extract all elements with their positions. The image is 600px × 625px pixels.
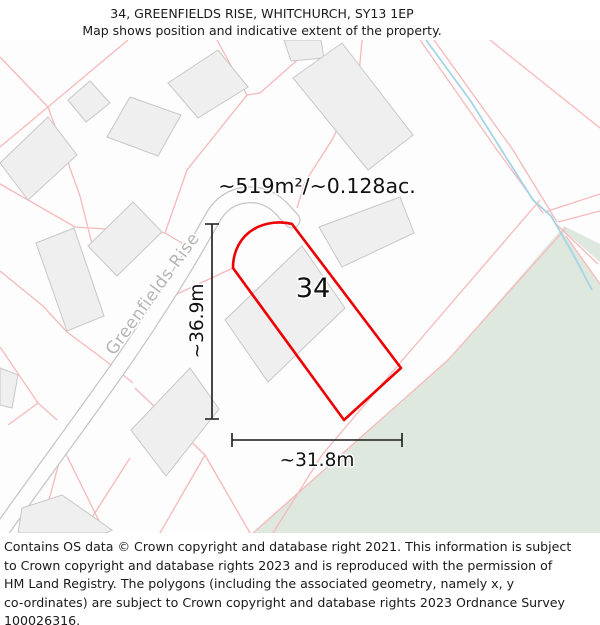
footer-line: co-ordinates) are subject to Crown copyr… — [4, 594, 598, 613]
copyright-footer: Contains OS data © Crown copyright and d… — [4, 538, 598, 625]
footer-line: Contains OS data © Crown copyright and d… — [4, 538, 598, 557]
header: 34, GREENFIELDS RISE, WHITCHURCH, SY13 1… — [0, 5, 524, 39]
footer-line: HM Land Registry. The polygons (includin… — [4, 575, 598, 594]
footer-line: to Crown copyright and database rights 2… — [4, 557, 598, 576]
plot-number-label: 34 — [296, 273, 330, 304]
map-canvas: Greenfields Rise ~519m²/~0.128ac. 34 ~36… — [0, 40, 600, 533]
page-title: 34, GREENFIELDS RISE, WHITCHURCH, SY13 1… — [0, 5, 524, 22]
horizontal-dimension-label: ~31.8m — [280, 450, 355, 471]
footer-line: 100026316. — [4, 612, 598, 625]
vertical-dimension-label: ~36.9m — [187, 284, 208, 359]
page-subtitle: Map shows position and indicative extent… — [0, 22, 524, 39]
property-map-page: 34, GREENFIELDS RISE, WHITCHURCH, SY13 1… — [0, 0, 600, 625]
building — [284, 40, 324, 61]
area-label: ~519m²/~0.128ac. — [218, 174, 416, 198]
